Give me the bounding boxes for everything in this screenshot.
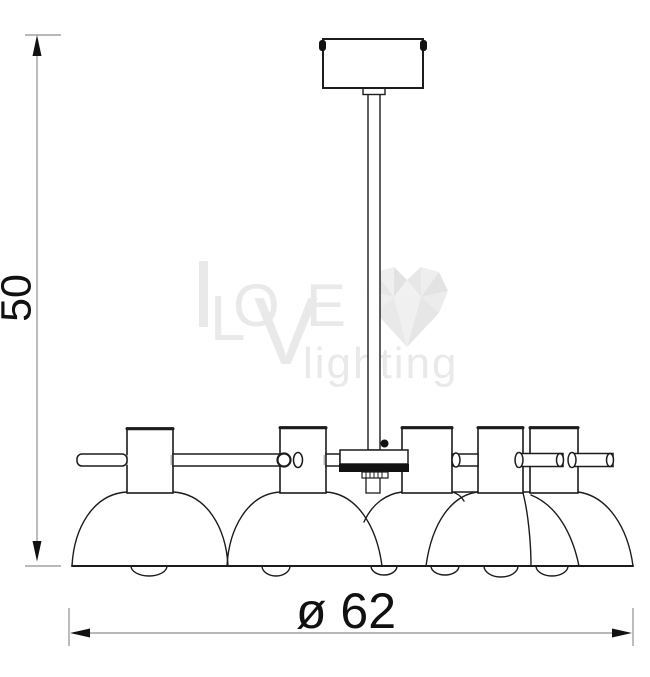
arm-cap-2: [452, 453, 460, 467]
bulb-arc-6: [536, 566, 568, 576]
canopy-screw-left: [319, 40, 326, 51]
bulb-arc-5: [484, 566, 518, 577]
watermark: L O V E lighting: [199, 261, 458, 388]
shade-4-left-edge: [426, 492, 478, 566]
shade-4-right-edge: [523, 493, 531, 566]
shade-2-left-edge: [227, 492, 280, 566]
bulb-arc-3: [371, 566, 397, 575]
bulb-arcs: [131, 566, 568, 577]
diameter-arrow-left: [70, 629, 90, 638]
shade-1-right-edge: [173, 492, 228, 566]
chandelier-drawing: L O V E lighting: [0, 0, 650, 677]
ceiling-canopy: [319, 39, 427, 88]
shade-5-left-edge: [531, 495, 579, 566]
set-screw-knob: [381, 440, 389, 448]
bulb-arc-1: [131, 566, 167, 576]
technical-drawing-page: L O V E lighting: [0, 0, 650, 677]
neck-1: [127, 428, 173, 493]
arm-cap-3: [515, 453, 523, 468]
neck-3: [402, 427, 452, 493]
arm-segment-1: [173, 454, 280, 466]
diameter-arrow-right: [612, 629, 632, 638]
shade-2-right-edge: [326, 492, 382, 566]
arm-segment-2: [326, 454, 340, 466]
height-arrow-down: [33, 541, 42, 562]
height-dimension-label: 50: [0, 274, 40, 322]
watermark-letter-e: E: [306, 272, 346, 339]
canopy-box: [323, 39, 423, 88]
shade-5-right-edge: [578, 492, 633, 566]
arm-cap-6: [607, 454, 614, 467]
height-arrow-up: [33, 35, 42, 56]
arm-cap-5: [568, 453, 576, 468]
hub-body: [340, 450, 408, 464]
shade-1-left-edge: [72, 492, 127, 566]
canopy-screw-right: [420, 40, 427, 51]
bulb-arc-4: [431, 566, 459, 575]
shade-outlines: [72, 492, 633, 566]
arm-left-stub: [77, 454, 127, 466]
stem-rod: [368, 94, 380, 450]
hub-dark-band: [339, 464, 409, 472]
watermark-letter-bar: [199, 261, 208, 327]
center-hub: [339, 450, 409, 478]
bulb-arc-2: [262, 566, 290, 576]
shade-3-left-edge: [364, 492, 402, 522]
arm-pivot-ring: [278, 454, 291, 467]
lamp-figure: [72, 39, 633, 577]
watermark-tagline: lighting: [303, 339, 458, 388]
diameter-dimension-label: ø 62: [296, 583, 396, 639]
arm-cap-4: [557, 454, 564, 467]
arm-cap-1: [294, 453, 303, 468]
